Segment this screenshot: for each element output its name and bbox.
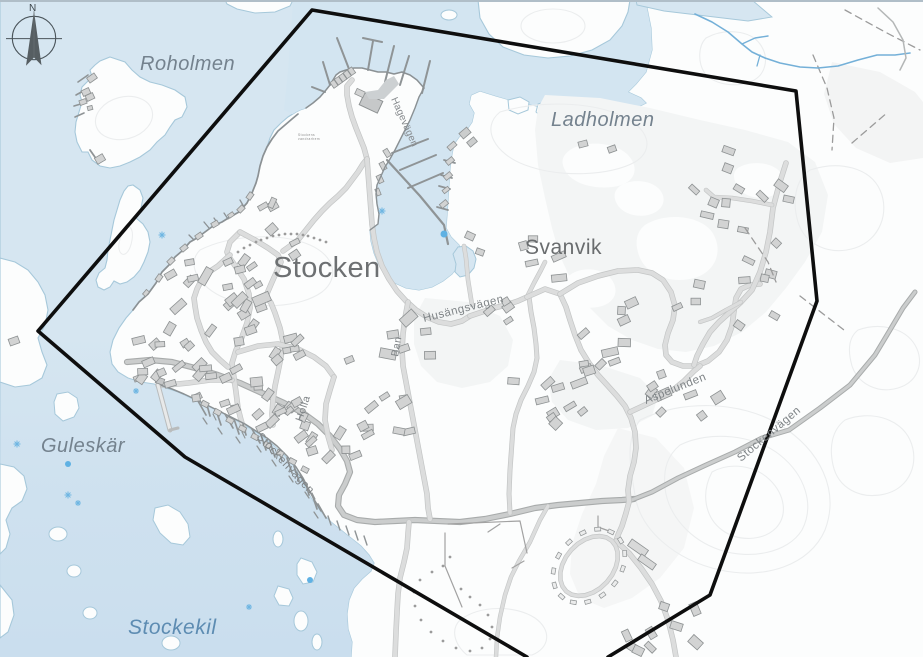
svg-text:vandrarhem: vandrarhem	[298, 137, 320, 141]
svg-text:Stockekil: Stockekil	[128, 616, 217, 639]
svg-text:Roholmen: Roholmen	[140, 53, 235, 75]
svg-text:Svanvik: Svanvik	[525, 236, 602, 259]
svg-text:N: N	[29, 3, 36, 14]
svg-text:Guleskär: Guleskär	[41, 435, 126, 457]
svg-text:Ladholmen: Ladholmen	[551, 109, 654, 131]
svg-text:Stocken: Stocken	[273, 252, 381, 284]
